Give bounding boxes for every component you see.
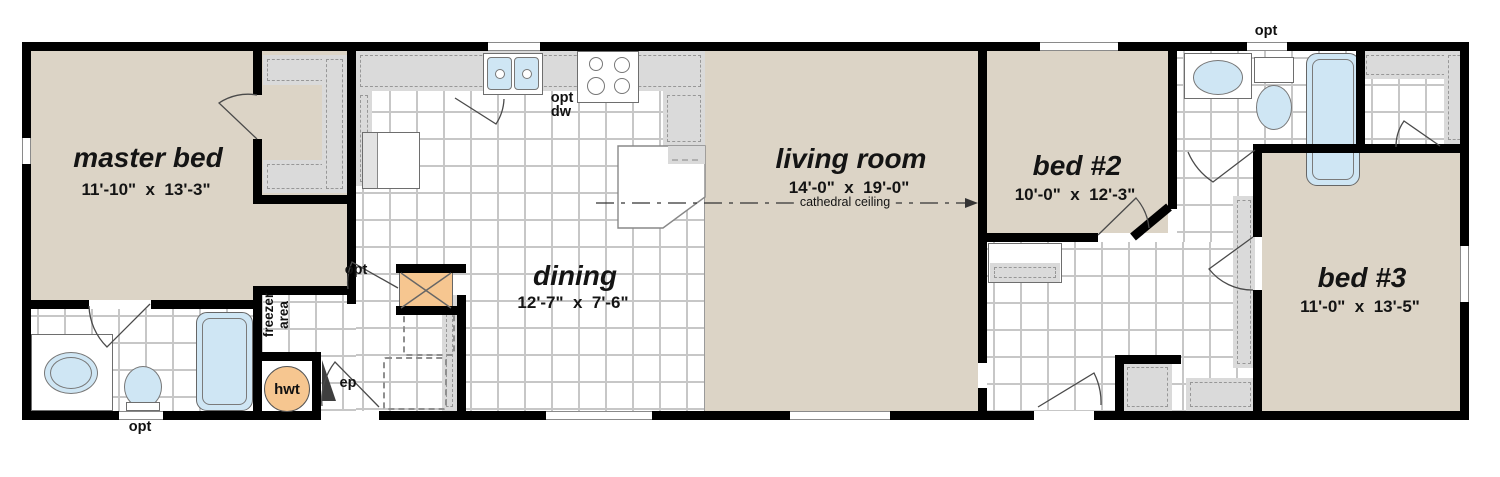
ceiling-note: cathedral ceiling [794, 195, 896, 209]
wardrobe-shelf-column [1233, 196, 1255, 368]
bath2-toilet-bowl [1256, 85, 1292, 130]
sink-bowl-right [514, 57, 539, 90]
room-label-dining: dining [533, 260, 617, 292]
stove [577, 51, 639, 103]
wall [312, 352, 321, 411]
wall [31, 300, 89, 309]
opt-label-utility-door: opt [345, 262, 368, 278]
optional-appliance-box [399, 271, 453, 310]
burner [614, 57, 630, 73]
window-bed3 [1460, 246, 1469, 302]
wall [978, 388, 987, 411]
wall [1168, 51, 1177, 209]
window-master-bed [22, 138, 31, 164]
refrigerator [362, 132, 420, 189]
freezer-area-label: freezer area [261, 275, 311, 355]
master-bath-sink-ring [50, 357, 92, 389]
room-label-master-bed: master bed [73, 142, 222, 174]
window-dining [546, 411, 652, 420]
optional-appliance-outline-2 [383, 357, 447, 410]
opt-label-top-window: opt [1255, 23, 1278, 39]
floor-master-bed [31, 51, 253, 300]
hwt-tank: hwt [264, 366, 310, 412]
wall-outer-left [22, 42, 31, 420]
sink-bowl-left [487, 57, 512, 90]
freezer-area-line2: area [276, 275, 291, 355]
master-toilet-tank [126, 402, 160, 411]
bath2-sink [1193, 60, 1243, 95]
wall [151, 300, 262, 309]
wall-outer-bottom [22, 411, 1469, 420]
kitchen-counter-right [663, 91, 705, 146]
wardrobe-shelf-bottom [1186, 378, 1255, 411]
wall [1253, 144, 1469, 153]
wall [1253, 153, 1262, 237]
wall [396, 264, 466, 273]
wall [253, 51, 262, 95]
dw-label: dw [551, 104, 571, 120]
refrigerator-door [363, 133, 378, 188]
hall-closet-shelf [1123, 363, 1172, 411]
room-dims-dining: 12'-7" x 7'-6" [517, 293, 628, 313]
wall [1356, 51, 1365, 153]
room-dims-bed3: 11'-0" x 13'-5" [1300, 297, 1420, 317]
window-living [790, 411, 890, 420]
room-label-living-room: living room [776, 143, 927, 175]
wall [978, 51, 987, 363]
floor-bed2 [987, 51, 1168, 233]
wall [1115, 355, 1124, 411]
wall-outer-right [1460, 42, 1469, 420]
kitchen-sink [483, 53, 543, 95]
room-dims-bed2: 10'-0" x 12'-3" [1015, 185, 1136, 205]
window-bath2-opt [1247, 42, 1287, 51]
wall [1253, 290, 1262, 411]
bath2-toilet-tank [1254, 57, 1294, 83]
room-label-bed3: bed #3 [1318, 262, 1407, 294]
wall [253, 195, 356, 204]
floor-living-room [705, 51, 978, 411]
window-kitchen [488, 42, 540, 51]
bath2-bathtub [1306, 53, 1360, 186]
closet-shelf-right [322, 55, 347, 193]
opt-label-bath-window: opt [129, 419, 152, 435]
wall [396, 306, 466, 315]
window-bed2 [1040, 42, 1118, 51]
hwt-label: hwt [274, 381, 300, 398]
wall [986, 233, 1098, 242]
door-opening-front [1034, 411, 1094, 420]
optional-appliance-outline-1 [403, 311, 455, 356]
burner [589, 57, 603, 71]
wall [1115, 355, 1181, 364]
door-opening-back [321, 411, 379, 420]
floor-plan: hwt [0, 0, 1500, 477]
master-bathtub [196, 312, 253, 411]
freezer-area-line1: freezer [261, 275, 276, 355]
burner [614, 78, 630, 94]
wall [457, 295, 466, 411]
burner [587, 77, 605, 95]
bed2-dresser-front [990, 263, 1060, 282]
ep-label: ep [340, 375, 357, 391]
room-label-bed2: bed #2 [1033, 150, 1122, 182]
room-dims-master-bed: 11'-10" x 13'-3" [81, 180, 210, 200]
